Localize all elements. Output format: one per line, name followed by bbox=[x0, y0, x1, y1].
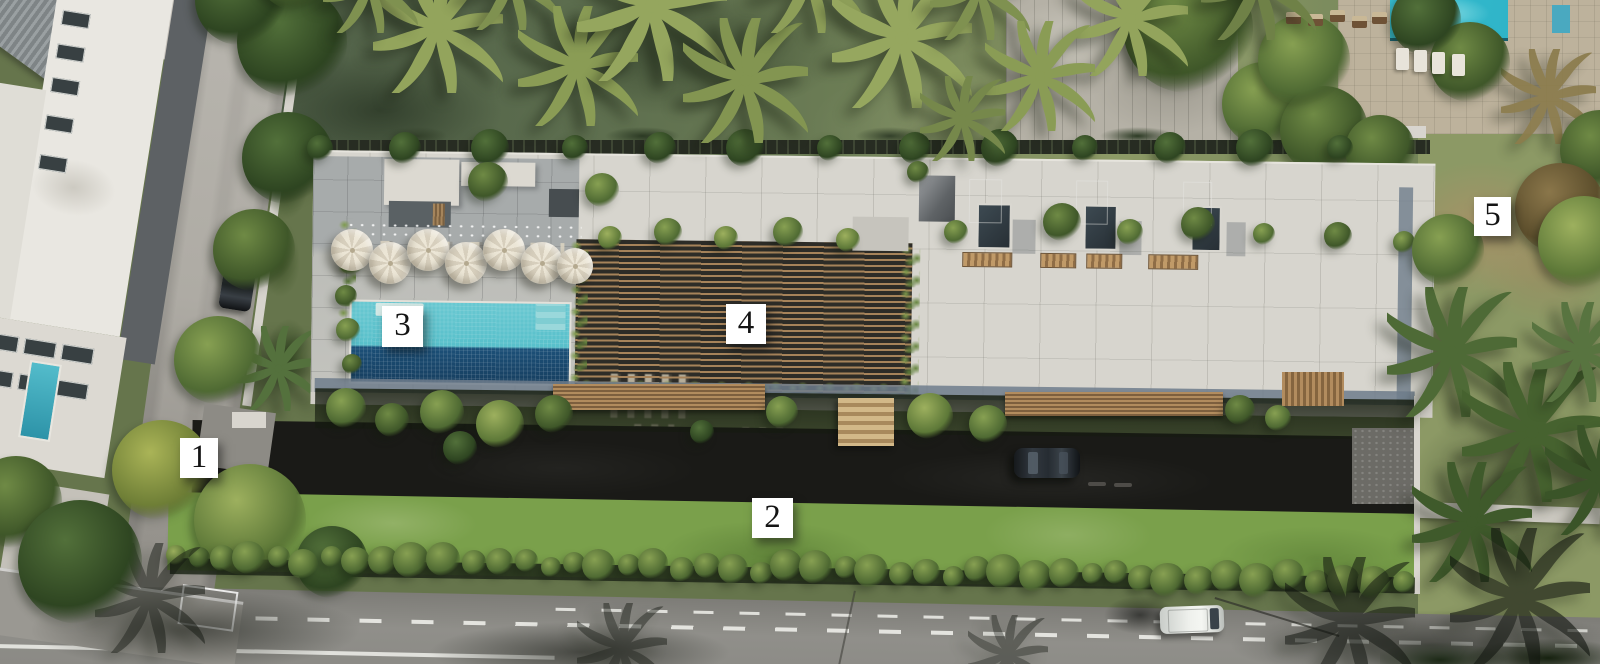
shrub bbox=[644, 132, 676, 164]
parasol bbox=[483, 229, 525, 271]
wood-louvre-band bbox=[1005, 392, 1223, 416]
skylight bbox=[976, 203, 1012, 249]
shrub bbox=[618, 554, 640, 576]
white-building-roof bbox=[0, 313, 127, 478]
parasol bbox=[369, 242, 411, 284]
marker-1[interactable]: 1 bbox=[180, 438, 218, 478]
shrub bbox=[443, 431, 477, 465]
shrub bbox=[1082, 563, 1103, 584]
bike-rack bbox=[1088, 482, 1106, 486]
shrub bbox=[585, 173, 619, 207]
marker-2[interactable]: 2 bbox=[752, 498, 793, 538]
wood-bench bbox=[962, 252, 1012, 268]
parasol bbox=[407, 229, 449, 271]
rooftop-skylight bbox=[0, 368, 14, 389]
patio-chair bbox=[1372, 12, 1387, 24]
shrub bbox=[326, 388, 366, 428]
marker-1-label: 1 bbox=[191, 441, 208, 474]
shrub bbox=[944, 220, 968, 244]
shrub bbox=[307, 135, 333, 161]
wood-deck bbox=[1282, 372, 1344, 406]
shrub bbox=[694, 553, 719, 578]
shrub bbox=[1239, 563, 1274, 598]
shrub bbox=[943, 566, 964, 587]
shrub bbox=[468, 162, 508, 202]
roadside-vegetation bbox=[1380, 636, 1600, 664]
shrub bbox=[342, 354, 362, 374]
wood-bench bbox=[1148, 254, 1198, 270]
shrub bbox=[907, 161, 929, 183]
shrub bbox=[726, 129, 764, 167]
shrub bbox=[1253, 223, 1275, 245]
marker-3[interactable]: 3 bbox=[382, 306, 423, 347]
marker-4[interactable]: 4 bbox=[726, 304, 766, 344]
marker-5-label: 5 bbox=[1484, 199, 1501, 232]
patio-chair bbox=[1308, 14, 1323, 26]
shrub bbox=[375, 403, 409, 437]
shrub bbox=[1150, 563, 1185, 598]
shrub bbox=[1181, 207, 1215, 241]
roof-walkway-pad bbox=[852, 217, 908, 252]
shrub bbox=[389, 132, 421, 164]
shrub bbox=[1154, 132, 1186, 164]
planter-row bbox=[345, 220, 581, 241]
gravel-patch bbox=[1352, 428, 1416, 504]
pool-lounger bbox=[1414, 50, 1427, 72]
rooftop-skylight bbox=[55, 379, 89, 400]
shrub bbox=[535, 395, 573, 433]
shrub bbox=[766, 396, 798, 428]
shrub bbox=[1184, 566, 1213, 595]
shrub bbox=[1225, 395, 1255, 425]
shrub bbox=[341, 547, 369, 575]
shrub bbox=[1072, 135, 1098, 161]
pergola-vines bbox=[899, 243, 921, 397]
neighbor-spa bbox=[1552, 5, 1570, 33]
shrub bbox=[817, 135, 843, 161]
shrub bbox=[18, 500, 142, 624]
shrub bbox=[288, 549, 318, 579]
rooftop-window bbox=[55, 43, 85, 62]
shrub bbox=[1324, 222, 1352, 250]
rooftop-skylight bbox=[23, 338, 57, 359]
patio-chair bbox=[1352, 16, 1367, 28]
rooftop-window bbox=[38, 154, 68, 173]
shrub bbox=[268, 546, 290, 568]
rooftop-window bbox=[61, 10, 91, 29]
parked-car-driveway bbox=[1014, 448, 1080, 478]
shrub bbox=[598, 226, 622, 250]
shrub bbox=[1236, 129, 1274, 167]
shrub bbox=[836, 228, 860, 252]
shrub bbox=[213, 209, 295, 291]
rooftop-window bbox=[50, 77, 80, 96]
marker-3-label: 3 bbox=[394, 309, 411, 342]
marker-2-label: 2 bbox=[764, 501, 781, 534]
rooftop-skylight bbox=[60, 344, 94, 365]
shrub bbox=[1393, 571, 1415, 593]
shrub bbox=[854, 554, 888, 588]
shrub bbox=[1104, 560, 1128, 584]
shrub bbox=[420, 390, 464, 434]
shrub bbox=[515, 549, 538, 572]
entry-pad bbox=[232, 412, 266, 428]
white-van bbox=[1160, 605, 1225, 634]
pool-lounger bbox=[1452, 54, 1465, 76]
shrub bbox=[1327, 135, 1353, 161]
roof-inset-band bbox=[1397, 187, 1414, 405]
shrub bbox=[562, 135, 588, 161]
shrub bbox=[462, 550, 487, 575]
skylight bbox=[1083, 204, 1118, 250]
shrub bbox=[426, 542, 460, 576]
pool-steps bbox=[535, 304, 565, 330]
shrub bbox=[714, 226, 738, 250]
shrub bbox=[986, 554, 1021, 589]
parasol bbox=[557, 248, 593, 284]
shrub bbox=[189, 547, 210, 568]
shrub bbox=[174, 316, 262, 404]
marker-4-label: 4 bbox=[738, 307, 755, 340]
marker-5[interactable]: 5 bbox=[1474, 197, 1511, 236]
shrub bbox=[1357, 566, 1390, 599]
shrub bbox=[1049, 558, 1079, 588]
shrub bbox=[773, 217, 803, 247]
pool-lounger bbox=[1396, 48, 1409, 70]
shrub bbox=[1019, 560, 1051, 592]
shrub bbox=[654, 218, 682, 246]
shrub bbox=[476, 400, 524, 448]
wood-bench bbox=[1040, 253, 1076, 268]
shrub bbox=[1273, 559, 1304, 590]
shrub bbox=[799, 550, 833, 584]
shrub bbox=[336, 318, 360, 342]
patio-chair bbox=[1330, 10, 1345, 22]
parasol bbox=[445, 242, 487, 284]
shrub bbox=[1327, 565, 1359, 597]
wood-stairs bbox=[838, 398, 894, 446]
patio-chair bbox=[1286, 12, 1301, 24]
shrub bbox=[907, 393, 953, 439]
shrub bbox=[981, 129, 1019, 167]
shrub bbox=[899, 132, 931, 164]
shrub bbox=[486, 548, 513, 575]
boundary-fence bbox=[1414, 396, 1420, 594]
pool-lounger bbox=[1432, 52, 1445, 74]
bike-rack bbox=[1114, 483, 1132, 487]
shrub bbox=[690, 420, 714, 444]
shrub bbox=[770, 549, 802, 581]
aerial-masterplan: 1 2 3 4 5 bbox=[0, 0, 1600, 664]
rooftop-skylight bbox=[0, 332, 19, 353]
shrub bbox=[670, 557, 694, 581]
wood-louvre-band bbox=[553, 384, 765, 410]
stair-core bbox=[384, 159, 460, 206]
wood-bench bbox=[1086, 253, 1122, 268]
shrub bbox=[638, 548, 669, 579]
rooftop-window bbox=[44, 115, 74, 134]
access-ramp bbox=[919, 175, 956, 221]
shrub bbox=[1265, 405, 1291, 431]
shrub bbox=[335, 285, 357, 307]
shrub bbox=[969, 405, 1007, 443]
parasol bbox=[331, 229, 373, 271]
shrub bbox=[1117, 219, 1143, 245]
shrub bbox=[1258, 14, 1350, 106]
shrub bbox=[1043, 203, 1081, 241]
roof-opening bbox=[549, 189, 579, 217]
